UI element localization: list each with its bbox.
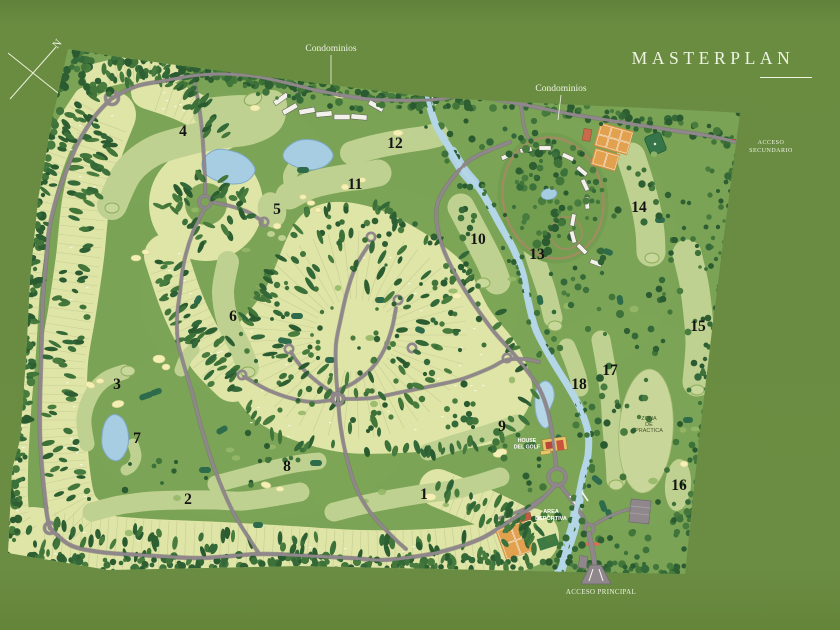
- svg-text:SECUNDARIO: SECUNDARIO: [749, 148, 793, 154]
- svg-text:AREA: AREA: [543, 509, 559, 515]
- svg-text:HOUSE: HOUSE: [518, 438, 537, 444]
- svg-text:MASTERPLAN: MASTERPLAN: [632, 48, 795, 68]
- svg-text:6: 6: [229, 308, 237, 325]
- svg-text:3: 3: [113, 376, 121, 393]
- svg-text:12: 12: [387, 135, 403, 152]
- svg-text:1: 1: [420, 486, 428, 503]
- svg-text:11: 11: [348, 176, 363, 193]
- svg-text:7: 7: [133, 430, 141, 447]
- svg-text:DEL GOLF: DEL GOLF: [514, 445, 540, 451]
- svg-text:9: 9: [498, 418, 506, 435]
- svg-text:14: 14: [631, 199, 647, 216]
- svg-text:2: 2: [184, 491, 192, 508]
- svg-text:16: 16: [671, 477, 687, 494]
- svg-text:4: 4: [179, 123, 187, 140]
- svg-text:15: 15: [690, 318, 706, 335]
- svg-text:8: 8: [283, 458, 291, 475]
- svg-text:PRACTICA: PRACTICA: [635, 428, 663, 434]
- svg-text:18: 18: [571, 376, 587, 393]
- svg-text:10: 10: [470, 231, 486, 248]
- svg-text:Condominios: Condominios: [305, 44, 357, 54]
- svg-text:ACCESO PRINCIPAL: ACCESO PRINCIPAL: [566, 589, 636, 596]
- svg-text:Condominios: Condominios: [535, 84, 587, 94]
- svg-text:DEPORTIVA: DEPORTIVA: [535, 516, 567, 522]
- svg-text:17: 17: [602, 362, 618, 379]
- svg-text:5: 5: [273, 201, 281, 218]
- svg-text:13: 13: [529, 246, 545, 263]
- svg-text:ACCESO: ACCESO: [758, 140, 785, 146]
